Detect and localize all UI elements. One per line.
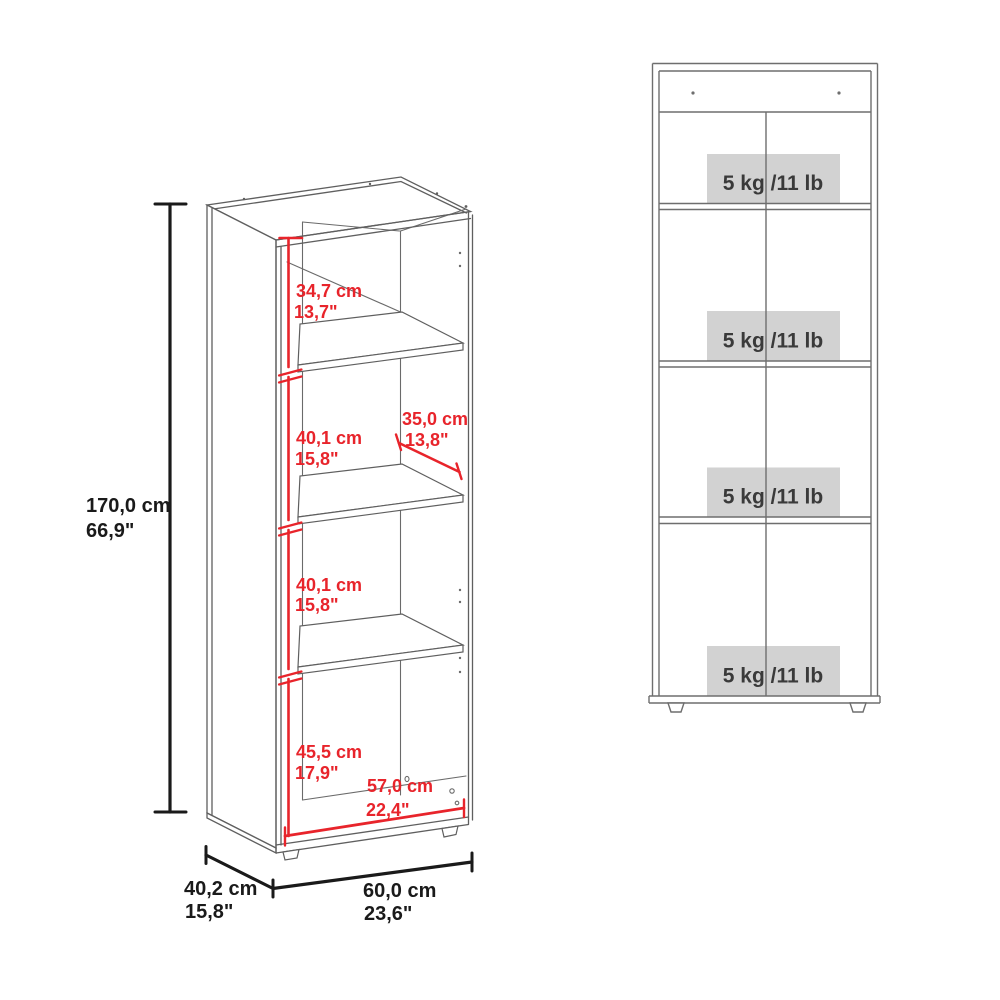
shelves [298,312,463,674]
dim-compartment-2-cm: 40,1 cm [296,428,362,448]
dim-compartment-3-cm: 40,1 cm [296,575,362,595]
shelf-2 [298,464,463,524]
dim-depth-in: 15,8" [185,901,233,923]
dim-compartment-1-in: 13,7" [294,302,338,322]
dim-compartment-4-in: 17,9" [295,763,339,783]
dim-depth-cm: 40,2 cm [184,878,257,900]
dim-compartment-4-cm: 45,5 cm [296,742,362,762]
iso-view: 34,7 cm 13,7" 40,1 cm 15,8" 40,1 cm 15,8… [86,177,473,925]
cabinet-left-panel [207,205,276,853]
shelf-3 [298,614,463,674]
dim-compartment-2-in: 15,8" [295,449,339,469]
dim-compartment-1-cm: 34,7 cm [296,281,362,301]
dim-shelf-depth-cm: 35,0 cm [402,409,468,429]
dim-inner-width-cm: 57,0 cm [367,776,433,796]
diagram-canvas: 34,7 cm 13,7" 40,1 cm 15,8" 40,1 cm 15,8… [0,0,1000,1000]
capacity-label-1: 5 kg /11 lb [723,172,823,195]
dim-height-in: 66,9" [86,520,134,542]
dim-height-cm: 170,0 cm [86,495,171,517]
dim-shelf-depth-in: 13,8" [405,430,449,450]
furniture-dimension-diagram: 34,7 cm 13,7" 40,1 cm 15,8" 40,1 cm 15,8… [0,0,1000,1000]
capacity-boxes [707,154,840,696]
dim-compartment-3-in: 15,8" [295,595,339,615]
front-view: 5 kg /11 lb 5 kg /11 lb 5 kg /11 lb 5 kg… [649,64,880,713]
dim-inner-width-in: 22,4" [366,800,410,820]
capacity-label-4: 5 kg /11 lb [723,665,823,688]
dim-width-cm: 60,0 cm [363,880,436,902]
capacity-labels: 5 kg /11 lb 5 kg /11 lb 5 kg /11 lb 5 kg… [723,172,823,688]
capacity-label-2: 5 kg /11 lb [723,330,823,353]
capacity-label-3: 5 kg /11 lb [723,486,823,509]
dim-width-in: 23,6" [364,903,412,925]
